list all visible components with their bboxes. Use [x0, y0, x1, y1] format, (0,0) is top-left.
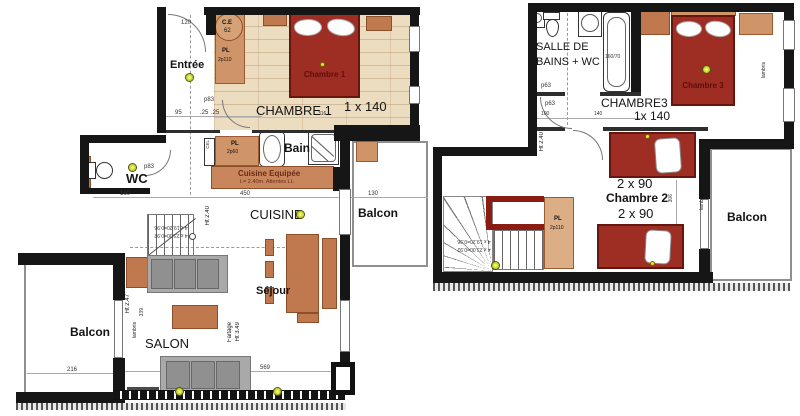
bathtub-size: 160/70: [605, 55, 620, 60]
sink-basin: [581, 14, 599, 32]
ceiling-light-icon: [492, 262, 499, 269]
room-label-chambre2: Chambre 2: [606, 192, 668, 204]
door-swing: [573, 130, 603, 160]
bathtub-basin: [607, 17, 626, 87]
wall: [706, 139, 794, 149]
toilet-icon: [546, 19, 559, 37]
bed-size-label: 1x 140: [634, 110, 670, 122]
stair-note: 4 x 23.00=0.92: [452, 246, 496, 251]
dim-label: 140: [594, 112, 602, 117]
staircase: [493, 230, 544, 270]
room-label-salle-de-bains-2: BAINS + WC: [536, 57, 600, 68]
closet-size: 2p110: [550, 226, 564, 231]
wall: [433, 272, 713, 283]
duvet: [644, 229, 672, 264]
wall: [433, 147, 537, 156]
wall: [537, 92, 565, 96]
room-label-chambre3: CHAMBRE3: [601, 97, 668, 109]
bed-size-label: 2 x 90: [618, 207, 653, 220]
wall: [699, 249, 710, 283]
wall: [603, 127, 708, 131]
wall-hatch: [433, 283, 790, 291]
door-label: p63: [541, 83, 551, 89]
nightstand: [739, 13, 773, 35]
wall: [528, 3, 537, 153]
bed-size-label: 2 x 90: [617, 177, 652, 190]
upper-floor-plan: 160/70 Chambre 3 4 x 19.20=0.96 4 x 23.0…: [0, 0, 800, 416]
window: [783, 88, 795, 122]
wall: [528, 3, 794, 12]
stair-guardrail: [486, 196, 544, 202]
stair-note: 4 x 19.20=0.96: [452, 238, 496, 243]
wall: [433, 147, 442, 283]
room-label-balcon-right: Balcon: [727, 211, 767, 223]
duvet: [654, 137, 682, 174]
ceiling-light-icon: [650, 261, 655, 266]
bed-label: Chambre 3: [671, 82, 735, 90]
finish-note: lambris: [762, 62, 767, 78]
floor-plan-canvas: C.E 62 PL 2p110 Chambre 1 PL 2p60 CEL Cu…: [0, 0, 800, 416]
finish-note: lambris: [700, 194, 705, 210]
dim-label: 306: [669, 194, 674, 202]
closet-pl-upper: [544, 197, 574, 269]
ceiling-light-icon: [645, 134, 650, 139]
window: [783, 20, 795, 50]
door-label: p63: [545, 101, 555, 107]
closet-label: PL: [554, 216, 562, 222]
wall: [537, 127, 565, 131]
single-bed-top: [609, 132, 696, 178]
wall: [699, 139, 710, 199]
dim-label: 100: [541, 112, 549, 117]
room-label-salle-de-bains-1: SALLE DE: [536, 42, 589, 53]
stair-guardrail: [486, 224, 544, 230]
height-note: Ht 2.40: [539, 132, 545, 151]
ceiling-light-icon: [703, 66, 710, 73]
wall: [631, 10, 641, 94]
